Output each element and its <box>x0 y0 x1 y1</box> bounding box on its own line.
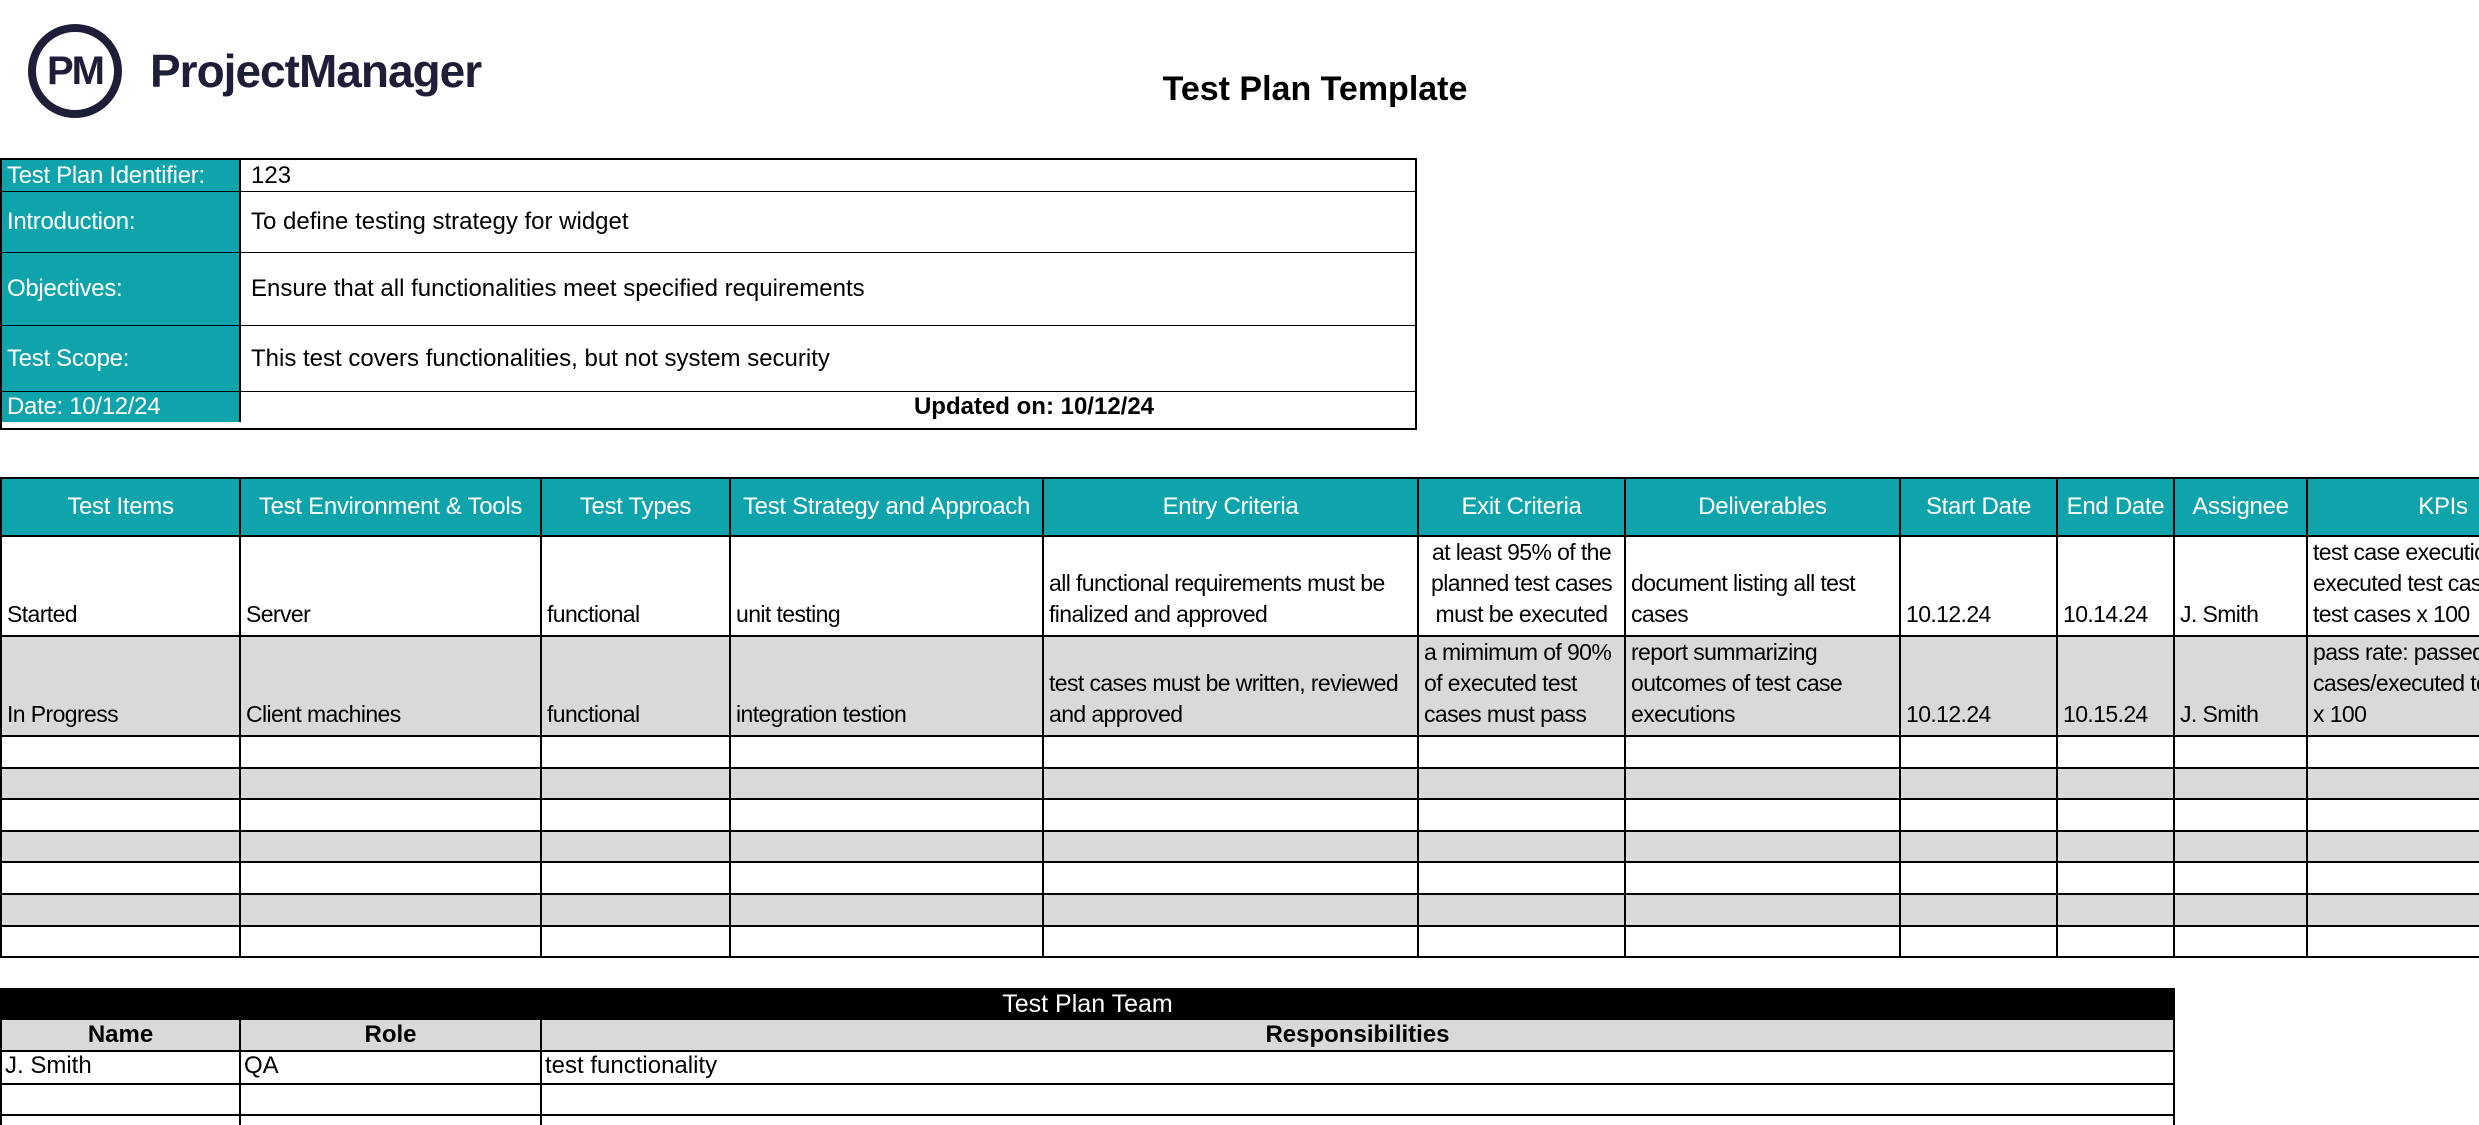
empty-row <box>2 737 2479 769</box>
cell-start-date[interactable]: 10.12.24 <box>1901 537 2058 637</box>
empty-cell[interactable] <box>2175 895 2308 927</box>
empty-cell[interactable] <box>731 895 1044 927</box>
info-label-objectives[interactable]: Objectives: <box>2 253 241 325</box>
empty-cell[interactable] <box>1626 895 1901 927</box>
empty-cell[interactable] <box>2 927 241 959</box>
team-header-name[interactable]: Name <box>2 1020 241 1052</box>
empty-cell[interactable] <box>542 927 731 959</box>
header-assignee[interactable]: Assignee <box>2175 479 2308 537</box>
empty-cell[interactable] <box>2175 737 2308 769</box>
empty-cell[interactable] <box>241 895 542 927</box>
empty-cell[interactable] <box>542 737 731 769</box>
cell-test-types[interactable]: functional <box>542 637 731 737</box>
empty-cell[interactable] <box>2058 895 2175 927</box>
header-deliverables[interactable]: Deliverables <box>1626 479 1901 537</box>
empty-cell[interactable] <box>241 737 542 769</box>
empty-cell[interactable] <box>542 769 731 801</box>
empty-cell[interactable] <box>1044 895 1419 927</box>
empty-row <box>2 832 2479 864</box>
cell-strategy[interactable]: unit testing <box>731 537 1044 637</box>
cell-deliverables[interactable]: document listing all test cases <box>1626 537 1901 637</box>
empty-cell[interactable] <box>2 1084 241 1116</box>
cell-end-date[interactable]: 10.14.24 <box>2058 537 2175 637</box>
empty-cell[interactable] <box>2308 927 2479 959</box>
test-plan-header-row: Test Items Test Environment & Tools Test… <box>2 479 2479 537</box>
header-start-date[interactable]: Start Date <box>1901 479 2058 537</box>
empty-cell[interactable] <box>2058 863 2175 895</box>
team-row-1: J. Smith QA test functionality <box>0 1052 2175 1084</box>
empty-cell[interactable] <box>2 1116 241 1125</box>
empty-cell[interactable] <box>2175 769 2308 801</box>
empty-cell[interactable] <box>241 863 542 895</box>
empty-row <box>2 769 2479 801</box>
empty-cell[interactable] <box>2058 832 2175 864</box>
cell-strategy[interactable]: integration testion <box>731 637 1044 737</box>
cell-environment[interactable]: Client machines <box>241 637 542 737</box>
empty-cell[interactable] <box>1044 769 1419 801</box>
cell-entry-criteria[interactable]: all functional requirements must be fina… <box>1044 537 1419 637</box>
empty-cell[interactable] <box>2308 737 2479 769</box>
info-label-scope[interactable]: Test Scope: <box>2 326 241 391</box>
empty-cell[interactable] <box>731 832 1044 864</box>
info-label-identifier[interactable]: Test Plan Identifier: <box>2 160 241 191</box>
cell-test-types[interactable]: functional <box>542 537 731 637</box>
empty-cell[interactable] <box>2175 927 2308 959</box>
cell-exit-criteria[interactable]: a mimimum of 90% of executed test cases … <box>1419 637 1626 737</box>
empty-cell[interactable] <box>542 1084 2175 1116</box>
team-header-row: Name Role Responsibilities <box>0 1020 2175 1052</box>
team-table-title-bar: Test Plan Team <box>0 988 2175 1020</box>
info-row: Test Scope: This test covers functionali… <box>2 326 1415 392</box>
empty-row <box>0 1084 2175 1116</box>
empty-cell[interactable] <box>2308 769 2479 801</box>
info-label-introduction[interactable]: Introduction: <box>2 192 241 252</box>
empty-cell[interactable] <box>1901 863 2058 895</box>
empty-cell[interactable] <box>1044 832 1419 864</box>
empty-cell[interactable] <box>1626 927 1901 959</box>
cell-entry-criteria[interactable]: test cases must be written, reviewed and… <box>1044 637 1419 737</box>
empty-cell[interactable] <box>1901 895 2058 927</box>
empty-cell[interactable] <box>2058 800 2175 832</box>
empty-cell[interactable] <box>2308 863 2479 895</box>
empty-cell[interactable] <box>2 895 241 927</box>
spreadsheet-page: PM ProjectManager Test Plan Template Tes… <box>0 0 2479 1125</box>
empty-cell[interactable] <box>731 863 1044 895</box>
empty-cell[interactable] <box>1626 769 1901 801</box>
cell-end-date[interactable]: 10.15.24 <box>2058 637 2175 737</box>
empty-cell[interactable] <box>2 737 241 769</box>
info-label-date[interactable]: Date: 10/12/24 <box>2 392 241 422</box>
empty-cell[interactable] <box>731 769 1044 801</box>
empty-row <box>2 863 2479 895</box>
empty-cell[interactable] <box>2058 927 2175 959</box>
header-strategy[interactable]: Test Strategy and Approach <box>731 479 1044 537</box>
empty-cell[interactable] <box>1419 800 1626 832</box>
cell-exit-criteria[interactable]: at least 95% of the planned test cases m… <box>1419 537 1626 637</box>
empty-cell[interactable] <box>2 800 241 832</box>
empty-cell[interactable] <box>1626 832 1901 864</box>
test-plan-table: Test Items Test Environment & Tools Test… <box>0 477 2479 958</box>
empty-cell[interactable] <box>2 769 241 801</box>
empty-cell[interactable] <box>1419 769 1626 801</box>
info-row: Objectives: Ensure that all functionalit… <box>2 253 1415 326</box>
empty-cell[interactable] <box>1901 832 2058 864</box>
empty-cell[interactable] <box>542 1116 2175 1125</box>
info-value-objectives[interactable]: Ensure that all functionalities meet spe… <box>241 253 1415 325</box>
team-table-title: Test Plan Team <box>1002 990 1172 1019</box>
empty-cell[interactable] <box>1626 800 1901 832</box>
header-end-date[interactable]: End Date <box>2058 479 2175 537</box>
info-value-introduction[interactable]: To define testing strategy for widget <box>241 192 1415 252</box>
empty-cell[interactable] <box>2308 800 2479 832</box>
cell-deliverables[interactable]: report summarizing outcomes of test case… <box>1626 637 1901 737</box>
empty-cell[interactable] <box>2175 832 2308 864</box>
empty-cell[interactable] <box>241 800 542 832</box>
empty-cell[interactable] <box>1626 737 1901 769</box>
empty-cell[interactable] <box>1901 927 2058 959</box>
empty-cell[interactable] <box>241 832 542 864</box>
info-row: Introduction: To define testing strategy… <box>2 192 1415 253</box>
empty-cell[interactable] <box>241 1116 542 1125</box>
empty-cell[interactable] <box>731 737 1044 769</box>
header-test-items[interactable]: Test Items <box>2 479 241 537</box>
cell-environment[interactable]: Server <box>241 537 542 637</box>
empty-cell[interactable] <box>1044 800 1419 832</box>
team-cell-name[interactable]: J. Smith <box>2 1052 241 1085</box>
empty-cell[interactable] <box>2175 863 2308 895</box>
cell-kpis[interactable]: test case execution: executed test cases… <box>2308 537 2479 637</box>
team-header-role[interactable]: Role <box>241 1020 542 1052</box>
cell-kpis[interactable]: pass rate: passed test cases/executed te… <box>2308 637 2479 737</box>
header-environment[interactable]: Test Environment & Tools <box>241 479 542 537</box>
info-row: Test Plan Identifier: 123 <box>2 160 1415 192</box>
empty-cell[interactable] <box>1044 863 1419 895</box>
empty-cell[interactable] <box>2308 832 2479 864</box>
empty-cell[interactable] <box>241 769 542 801</box>
team-cell-role[interactable]: QA <box>241 1052 542 1085</box>
team-header-responsibilities[interactable]: Responsibilities <box>542 1020 2175 1052</box>
empty-row <box>2 927 2479 959</box>
info-value-identifier[interactable]: 123 <box>241 160 1415 191</box>
cell-test-items[interactable]: Started <box>2 537 241 637</box>
empty-cell[interactable] <box>241 1084 542 1116</box>
header-entry-criteria[interactable]: Entry Criteria <box>1044 479 1419 537</box>
page-title: Test Plan Template <box>1163 70 1468 109</box>
brand-name: ProjectManager <box>150 44 481 98</box>
cell-assignee[interactable]: J. Smith <box>2175 637 2308 737</box>
empty-row <box>2 800 2479 832</box>
empty-row <box>2 895 2479 927</box>
empty-cell[interactable] <box>1044 737 1419 769</box>
header-test-types[interactable]: Test Types <box>542 479 731 537</box>
test-plan-row-2: In Progress Client machines functional i… <box>2 637 2479 737</box>
empty-cell[interactable] <box>2 863 241 895</box>
empty-row <box>0 1116 2175 1125</box>
empty-cell[interactable] <box>2308 895 2479 927</box>
empty-cell[interactable] <box>1419 927 1626 959</box>
empty-cell[interactable] <box>542 800 731 832</box>
projectmanager-logo-icon: PM <box>28 24 122 118</box>
empty-cell[interactable] <box>1419 832 1626 864</box>
cell-start-date[interactable]: 10.12.24 <box>1901 637 2058 737</box>
empty-cell[interactable] <box>2175 800 2308 832</box>
info-row: Date: 10/12/24 Updated on: 10/12/24 <box>2 392 1415 422</box>
logo-monogram: PM <box>47 49 103 94</box>
empty-cell[interactable] <box>731 800 1044 832</box>
empty-cell[interactable] <box>542 863 731 895</box>
empty-cell[interactable] <box>731 927 1044 959</box>
empty-cell[interactable] <box>1901 800 2058 832</box>
team-cell-responsibilities[interactable]: test functionality <box>542 1052 2175 1085</box>
empty-cell[interactable] <box>1626 863 1901 895</box>
empty-cell[interactable] <box>1901 737 2058 769</box>
team-table: Test Plan Team Name Role Responsibilitie… <box>0 988 2175 1125</box>
header-exit-criteria[interactable]: Exit Criteria <box>1419 479 1626 537</box>
empty-cell[interactable] <box>2 832 241 864</box>
info-table: Test Plan Identifier: 123 Introduction: … <box>0 158 1417 430</box>
test-plan-row-1: Started Server functional unit testing a… <box>2 537 2479 637</box>
empty-cell[interactable] <box>1419 895 1626 927</box>
empty-cell[interactable] <box>1044 927 1419 959</box>
empty-cell[interactable] <box>1901 769 2058 801</box>
empty-cell[interactable] <box>1419 863 1626 895</box>
info-value-updated-on[interactable]: Updated on: 10/12/24 <box>241 392 1415 422</box>
empty-cell[interactable] <box>1419 737 1626 769</box>
empty-cell[interactable] <box>542 895 731 927</box>
cell-test-items[interactable]: In Progress <box>2 637 241 737</box>
empty-cell[interactable] <box>241 927 542 959</box>
empty-cell[interactable] <box>2058 737 2175 769</box>
header-kpis[interactable]: KPIs <box>2308 479 2479 537</box>
empty-cell[interactable] <box>2058 769 2175 801</box>
cell-assignee[interactable]: J. Smith <box>2175 537 2308 637</box>
info-value-scope[interactable]: This test covers functionalities, but no… <box>241 326 1415 391</box>
empty-cell[interactable] <box>542 832 731 864</box>
